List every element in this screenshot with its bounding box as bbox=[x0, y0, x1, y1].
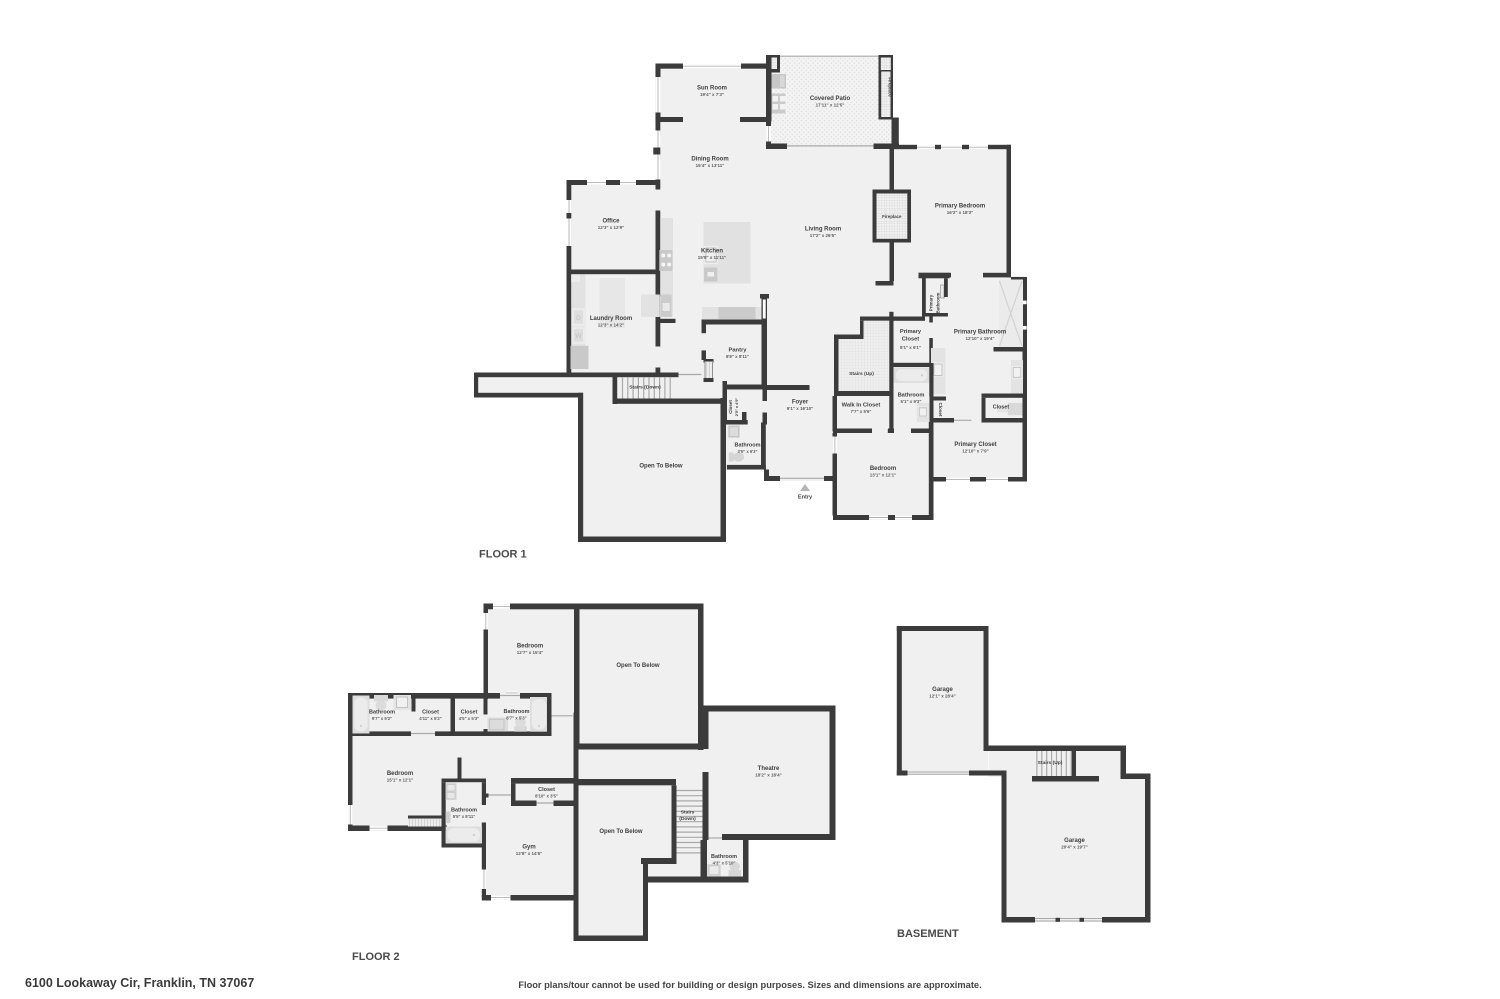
svg-text:15'1" x 12'1": 15'1" x 12'1" bbox=[387, 778, 413, 783]
svg-text:Open To Below: Open To Below bbox=[599, 829, 643, 835]
svg-text:12'3" x 14'2": 12'3" x 14'2" bbox=[598, 323, 624, 328]
svg-text:Closet: Closet bbox=[728, 400, 733, 414]
svg-text:Bathroom: Bathroom bbox=[451, 808, 477, 814]
svg-text:9'7" x 5'2": 9'7" x 5'2" bbox=[372, 716, 392, 721]
svg-text:19'4" x 7'3": 19'4" x 7'3" bbox=[700, 92, 724, 97]
svg-text:Bedroom: Bedroom bbox=[870, 466, 896, 472]
svg-text:4'3" x 5'10": 4'3" x 5'10" bbox=[713, 861, 736, 866]
svg-text:FLOOR 2: FLOOR 2 bbox=[352, 951, 400, 963]
svg-text:Stairs (Up): Stairs (Up) bbox=[1038, 760, 1063, 766]
svg-text:2'5" x 4'9": 2'5" x 4'9" bbox=[734, 398, 739, 417]
svg-text:Fireplace: Fireplace bbox=[887, 77, 892, 97]
svg-text:Primary Bedroom: Primary Bedroom bbox=[935, 204, 985, 210]
svg-text:12'3" x 12'9": 12'3" x 12'9" bbox=[598, 225, 624, 230]
svg-text:8'1" x 6'1": 8'1" x 6'1" bbox=[900, 345, 921, 350]
svg-text:Bedroom: Bedroom bbox=[517, 644, 543, 650]
svg-text:6100 Lookaway Cir, Franklin, T: 6100 Lookaway Cir, Franklin, TN 37067 bbox=[25, 976, 254, 990]
svg-text:4'11" x 5'2": 4'11" x 5'2" bbox=[419, 716, 442, 721]
svg-text:20'4" x 19'7": 20'4" x 19'7" bbox=[1061, 845, 1087, 850]
svg-text:8'8" x 8'11": 8'8" x 8'11" bbox=[726, 354, 749, 359]
svg-text:9'1" x 16'10": 9'1" x 16'10" bbox=[787, 406, 813, 411]
svg-text:5'5" x 8'11": 5'5" x 8'11" bbox=[453, 814, 476, 819]
svg-text:7'7" x 5'6": 7'7" x 5'6" bbox=[851, 409, 872, 414]
svg-text:17'11" x 12'5": 17'11" x 12'5" bbox=[816, 103, 845, 108]
svg-text:15'4" x 13'11": 15'4" x 13'11" bbox=[696, 163, 725, 168]
svg-text:Kitchen: Kitchen bbox=[701, 249, 723, 255]
svg-text:(Down): (Down) bbox=[679, 816, 696, 822]
svg-text:Bathroom: Bathroom bbox=[504, 709, 530, 715]
svg-text:Bedroom: Bedroom bbox=[387, 771, 413, 777]
svg-text:12'10" x 19'4": 12'10" x 19'4" bbox=[966, 336, 995, 341]
svg-text:Pantry: Pantry bbox=[728, 348, 747, 354]
svg-text:W: W bbox=[575, 333, 582, 340]
svg-text:Closet: Closet bbox=[461, 710, 478, 716]
svg-text:4'5" x 5'3": 4'5" x 5'3" bbox=[459, 716, 479, 721]
svg-text:18'2" x 18'4": 18'2" x 18'4" bbox=[755, 773, 781, 778]
svg-text:Garage: Garage bbox=[1064, 838, 1085, 844]
svg-text:12'8" x 14'6": 12'8" x 14'6" bbox=[516, 851, 542, 856]
svg-text:Living Room: Living Room bbox=[805, 227, 841, 233]
svg-text:Walk In Closet: Walk In Closet bbox=[842, 403, 881, 409]
svg-text:12'10" x 7'9": 12'10" x 7'9" bbox=[962, 449, 988, 454]
svg-text:12'7" x 15'4": 12'7" x 15'4" bbox=[517, 650, 543, 655]
svg-text:13'1" x 12'1": 13'1" x 12'1" bbox=[870, 473, 896, 478]
svg-text:Bathroom: Bathroom bbox=[711, 854, 737, 860]
svg-text:Office: Office bbox=[602, 219, 620, 225]
svg-text:8'7" x 5'3": 8'7" x 5'3" bbox=[506, 716, 526, 721]
svg-text:Closet: Closet bbox=[938, 402, 943, 417]
svg-text:Primary Closet: Primary Closet bbox=[954, 442, 996, 448]
svg-text:D: D bbox=[576, 315, 581, 322]
svg-text:BASEMENT: BASEMENT bbox=[897, 928, 959, 940]
svg-text:Entry: Entry bbox=[798, 495, 813, 501]
svg-text:Bathroom: Bathroom bbox=[369, 710, 395, 716]
svg-text:Open To Below: Open To Below bbox=[616, 663, 660, 669]
svg-text:Closet: Closet bbox=[422, 710, 439, 716]
svg-text:Stairs (Up): Stairs (Up) bbox=[849, 371, 874, 377]
svg-text:Dining Room: Dining Room bbox=[691, 157, 728, 163]
svg-text:3'5" x 6'3": 3'5" x 6'3" bbox=[738, 449, 758, 454]
svg-text:12'1" x 28'4": 12'1" x 28'4" bbox=[929, 694, 955, 699]
svg-text:Stairs: Stairs bbox=[681, 810, 695, 816]
svg-text:Closet: Closet bbox=[538, 787, 555, 793]
svg-text:Closet: Closet bbox=[902, 337, 919, 343]
svg-text:Gym: Gym bbox=[522, 845, 535, 851]
svg-text:Stairs (Down): Stairs (Down) bbox=[629, 385, 661, 391]
svg-text:Bathroom: Bathroom bbox=[898, 393, 925, 399]
svg-text:8'10" x 3'5": 8'10" x 3'5" bbox=[535, 794, 558, 799]
svg-text:Open To Below: Open To Below bbox=[639, 464, 683, 470]
svg-text:Primary: Primary bbox=[900, 329, 922, 335]
svg-text:Closet: Closet bbox=[993, 405, 1010, 411]
svg-text:FLOOR 1: FLOOR 1 bbox=[479, 549, 527, 561]
svg-text:Bathroom: Bathroom bbox=[936, 293, 941, 314]
svg-text:Theatre: Theatre bbox=[758, 766, 780, 772]
svg-text:Fireplace: Fireplace bbox=[882, 214, 902, 219]
svg-text:Garage: Garage bbox=[932, 687, 953, 693]
svg-text:Bathroom: Bathroom bbox=[735, 443, 761, 449]
svg-text:Covered Patio: Covered Patio bbox=[810, 96, 851, 102]
svg-text:16'2" x 18'3": 16'2" x 18'3" bbox=[947, 210, 973, 215]
svg-text:Foyer: Foyer bbox=[792, 400, 809, 406]
svg-text:Floor plans/tour cannot be use: Floor plans/tour cannot be used for buil… bbox=[518, 980, 981, 990]
svg-text:17'2" x 26'5": 17'2" x 26'5" bbox=[810, 233, 836, 238]
svg-text:Sun Room: Sun Room bbox=[697, 86, 727, 92]
svg-text:15'9" x 11'11": 15'9" x 11'11" bbox=[698, 255, 726, 260]
svg-text:Primary Bathroom: Primary Bathroom bbox=[954, 330, 1006, 336]
svg-text:5'1" x 9'3": 5'1" x 9'3" bbox=[901, 399, 922, 404]
svg-text:Primary: Primary bbox=[929, 294, 934, 311]
svg-text:Laundry Room: Laundry Room bbox=[590, 316, 632, 322]
